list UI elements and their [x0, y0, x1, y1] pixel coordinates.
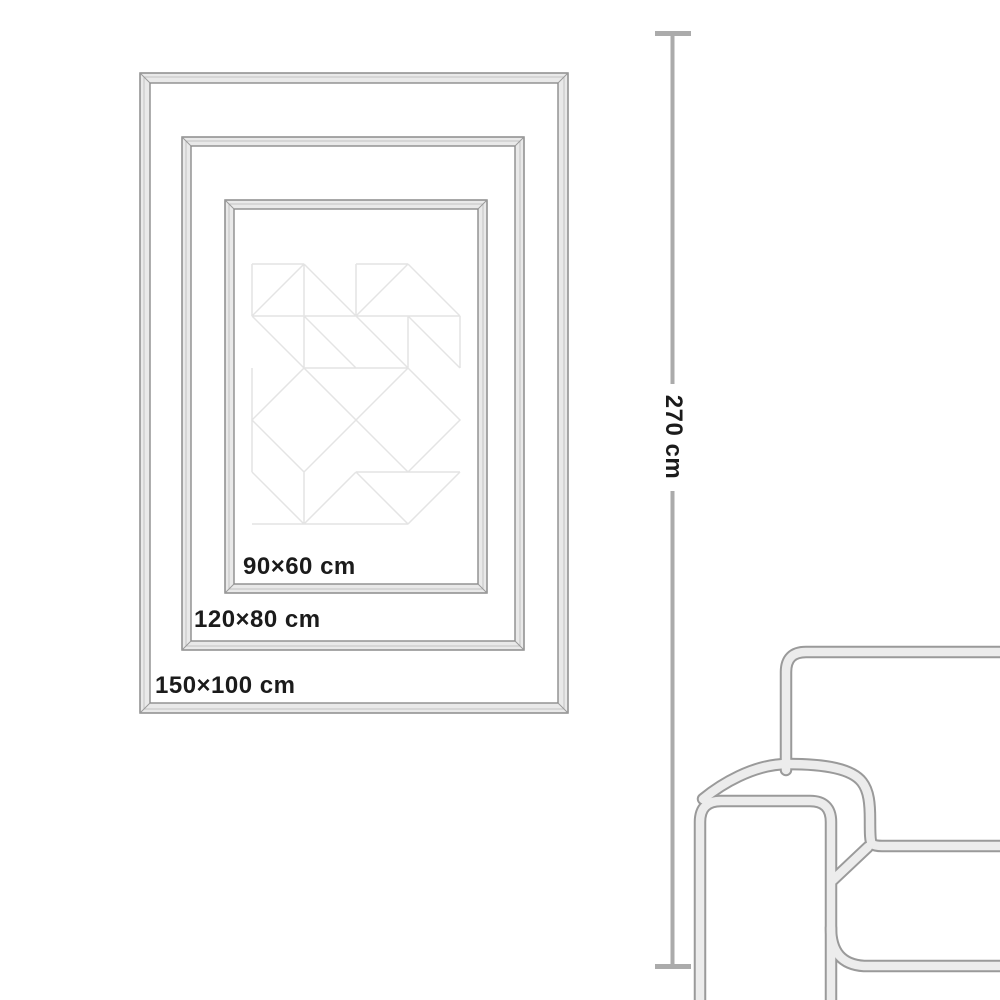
size-guide-canvas: 90×60 cm 120×80 cm 150×100 cm 270 cm: [0, 0, 1000, 1000]
frame-90x60: [225, 200, 487, 593]
size-label-150x100: 150×100 cm: [155, 672, 295, 700]
size-label-90x60: 90×60 cm: [243, 553, 356, 581]
ceiling-height-label: 270 cm: [659, 395, 687, 479]
height-dimension-line: [655, 33, 691, 967]
sofa-illustration: [700, 652, 1000, 1000]
size-label-120x80: 120×80 cm: [194, 606, 321, 634]
size-guide-graphic: [0, 0, 1000, 1000]
